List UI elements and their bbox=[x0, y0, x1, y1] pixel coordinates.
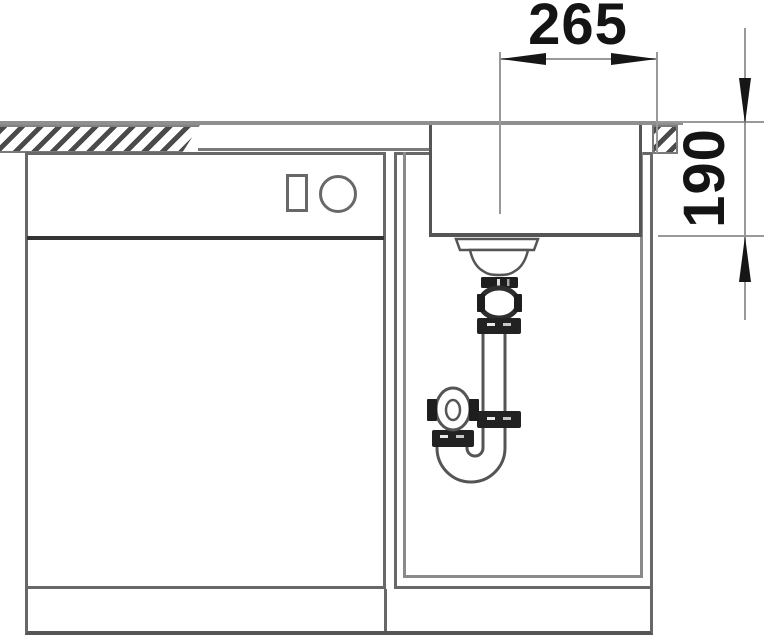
dishwasher-door-line bbox=[27, 236, 384, 240]
pipe-nut bbox=[477, 411, 521, 428]
dim-190-extension-bottom bbox=[658, 235, 764, 237]
outlet-nut-band bbox=[432, 430, 474, 447]
dim-265-extension-center bbox=[499, 52, 501, 214]
dim-190-label: 190 bbox=[676, 128, 734, 228]
plinth bbox=[25, 589, 653, 635]
dim-190-extension-top bbox=[658, 121, 764, 123]
control-knob bbox=[319, 175, 357, 213]
dim-265-extension-right bbox=[656, 52, 658, 153]
curl-nut-right bbox=[469, 399, 479, 421]
curl-nut-left bbox=[427, 399, 437, 421]
control-button bbox=[286, 174, 308, 212]
dim-265-line bbox=[500, 58, 657, 60]
drain-siphon-assembly bbox=[425, 230, 545, 492]
dim-190-line bbox=[744, 28, 746, 320]
sink-rim-line bbox=[198, 148, 432, 151]
strainer-bowl bbox=[470, 250, 528, 275]
plinth-divider bbox=[384, 589, 387, 631]
strainer-flange bbox=[456, 239, 538, 250]
coupling-nut bbox=[477, 318, 521, 334]
outlet-curl-inner bbox=[446, 400, 460, 420]
countertop-hatch-left bbox=[0, 125, 200, 153]
dim-265-label: 265 bbox=[528, 0, 628, 54]
dishwasher-cabinet bbox=[25, 152, 386, 589]
sink-installation-diagram: 265 190 bbox=[0, 0, 768, 640]
drain-union-ring bbox=[480, 288, 518, 318]
sink-bowl bbox=[429, 125, 642, 237]
